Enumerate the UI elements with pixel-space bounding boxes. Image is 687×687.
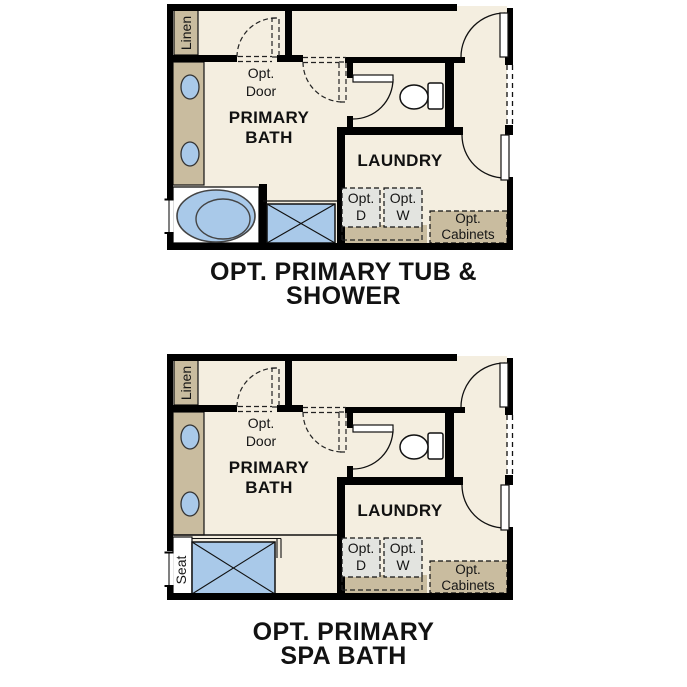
- plan-title-tub-shower: OPT. PRIMARY TUB & SHOWER: [0, 261, 687, 308]
- label-opt-cabinets: Cabinets: [441, 578, 495, 593]
- wall: [445, 410, 454, 485]
- label-opt-dryer: Opt.: [348, 540, 374, 556]
- label-primary-bath: BATH: [245, 478, 293, 497]
- toilet-bowl: [400, 85, 428, 109]
- toilet-bowl: [400, 435, 428, 459]
- floorplan-canvas: Linen Opt. Door PRIMARY BATH LAUNDRY Opt…: [0, 0, 687, 687]
- wall: [167, 354, 173, 551]
- door-leaf: [353, 425, 393, 432]
- label-opt-cabinets: Cabinets: [441, 227, 495, 242]
- label-opt-cabinets: Opt.: [455, 562, 481, 577]
- door-leaf: [501, 135, 509, 180]
- door-leaf: [353, 75, 393, 82]
- toilet-tank: [428, 433, 443, 459]
- label-opt-door: Door: [246, 433, 277, 449]
- label-primary-bath: PRIMARY: [229, 458, 310, 477]
- wall: [285, 354, 292, 412]
- plan-title-line: SHOWER: [0, 285, 687, 309]
- wall: [507, 177, 513, 250]
- wall: [167, 405, 237, 412]
- wall: [347, 63, 353, 78]
- wall: [167, 55, 237, 62]
- plan-title-spa-bath: OPT. PRIMARY SPA BATH: [0, 621, 687, 668]
- wall: [445, 60, 454, 135]
- label-primary-bath: PRIMARY: [229, 108, 310, 127]
- label-opt-door: Opt.: [248, 65, 274, 81]
- label-opt-door: Door: [246, 83, 277, 99]
- sink: [181, 142, 199, 166]
- wall: [167, 593, 513, 600]
- wall: [259, 184, 267, 243]
- wall: [285, 4, 292, 62]
- label-linen: Linen: [178, 366, 194, 400]
- door-leaf: [501, 485, 509, 530]
- label-laundry: LAUNDRY: [357, 151, 443, 170]
- wall: [167, 4, 457, 11]
- label-opt-washer: Opt.: [390, 190, 416, 206]
- label-seat: Seat: [173, 555, 189, 584]
- label-opt-washer: W: [396, 207, 410, 223]
- wall: [337, 127, 463, 135]
- wall: [167, 243, 513, 250]
- wall: [507, 527, 513, 600]
- label-laundry: LAUNDRY: [357, 501, 443, 520]
- wall: [505, 125, 513, 135]
- wall: [505, 475, 513, 485]
- label-opt-washer: W: [396, 557, 410, 573]
- wall: [167, 4, 173, 201]
- label-opt-dryer: D: [356, 557, 366, 573]
- plan-title-line: SPA BATH: [0, 645, 687, 669]
- toilet-tank: [428, 83, 443, 109]
- bathtub-inner: [196, 199, 250, 239]
- label-primary-bath: BATH: [245, 128, 293, 147]
- sink: [181, 492, 199, 516]
- door-leaf: [500, 363, 508, 407]
- plan-title-line: OPT. PRIMARY TUB &: [0, 261, 687, 285]
- label-opt-door: Opt.: [248, 415, 274, 431]
- wall: [347, 413, 353, 428]
- plan-title-line: OPT. PRIMARY: [0, 621, 687, 645]
- wall: [337, 477, 463, 485]
- label-opt-washer: Opt.: [390, 540, 416, 556]
- label-linen: Linen: [178, 16, 194, 50]
- wall: [167, 354, 457, 361]
- sink: [181, 425, 199, 449]
- label-opt-dryer: D: [356, 207, 366, 223]
- label-opt-cabinets: Opt.: [455, 211, 481, 226]
- label-opt-dryer: Opt.: [348, 190, 374, 206]
- door-leaf: [500, 13, 508, 57]
- sink: [181, 75, 199, 99]
